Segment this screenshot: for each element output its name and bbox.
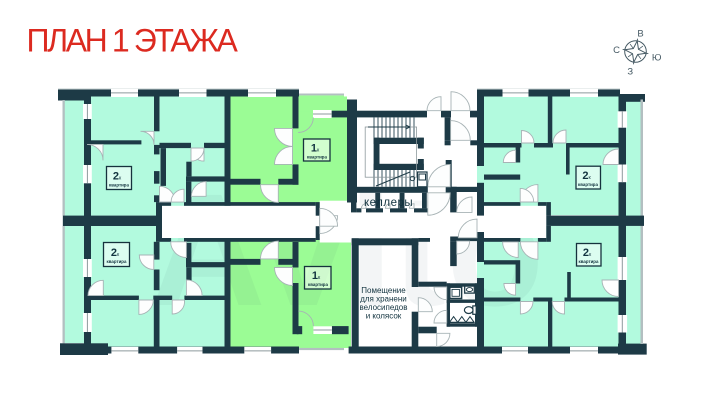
svg-text:келлеры: келлеры [364, 197, 413, 209]
svg-text:квартира: квартира [579, 259, 599, 264]
svg-text:квартира: квартира [308, 282, 328, 287]
svg-text:ПЛАН 1 ЭТАЖА: ПЛАН 1 ЭТАЖА [27, 23, 239, 59]
svg-text:квартира: квартира [307, 155, 327, 160]
svg-text:квартира: квартира [109, 183, 129, 188]
svg-text:квартира: квартира [107, 259, 127, 264]
svg-text:С: С [613, 45, 620, 56]
svg-text:квартира: квартира [578, 182, 598, 187]
svg-text:З: З [627, 67, 633, 78]
svg-text:и колясок: и колясок [366, 312, 402, 321]
svg-text:В: В [637, 29, 643, 40]
svg-text:Ю: Ю [652, 53, 662, 64]
